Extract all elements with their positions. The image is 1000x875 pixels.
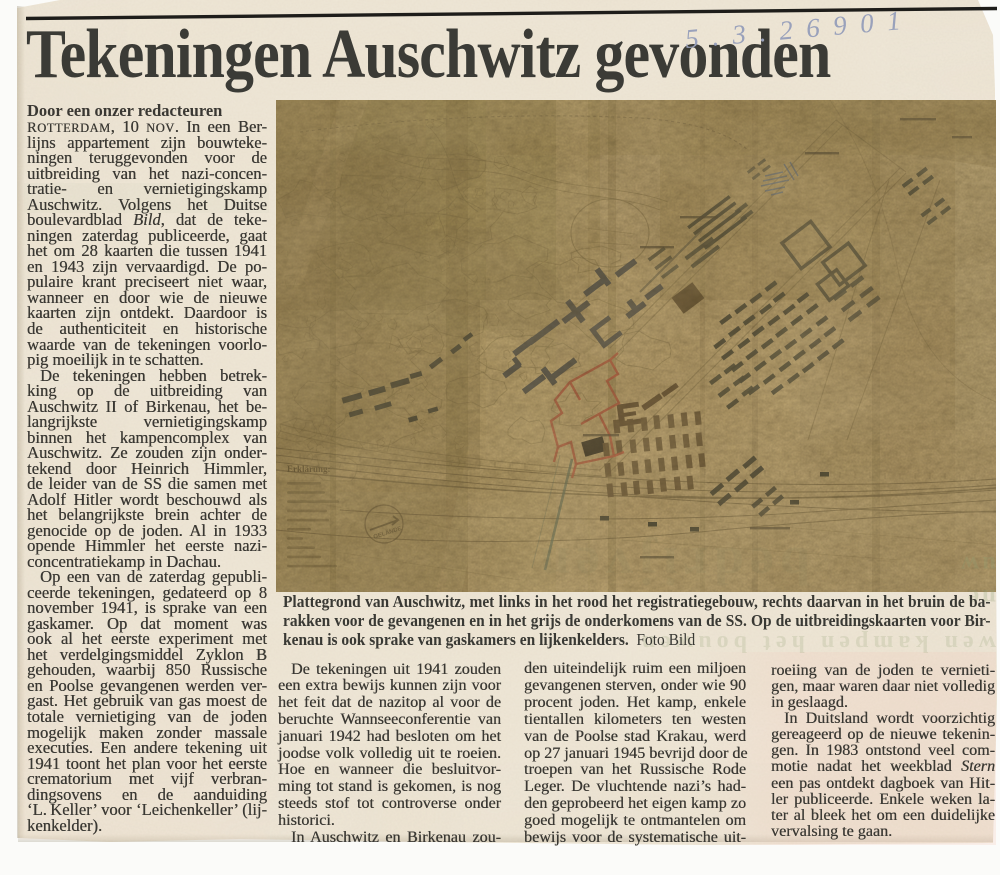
svg-text:5.3.26901: 5.3.26901 (684, 11, 915, 54)
